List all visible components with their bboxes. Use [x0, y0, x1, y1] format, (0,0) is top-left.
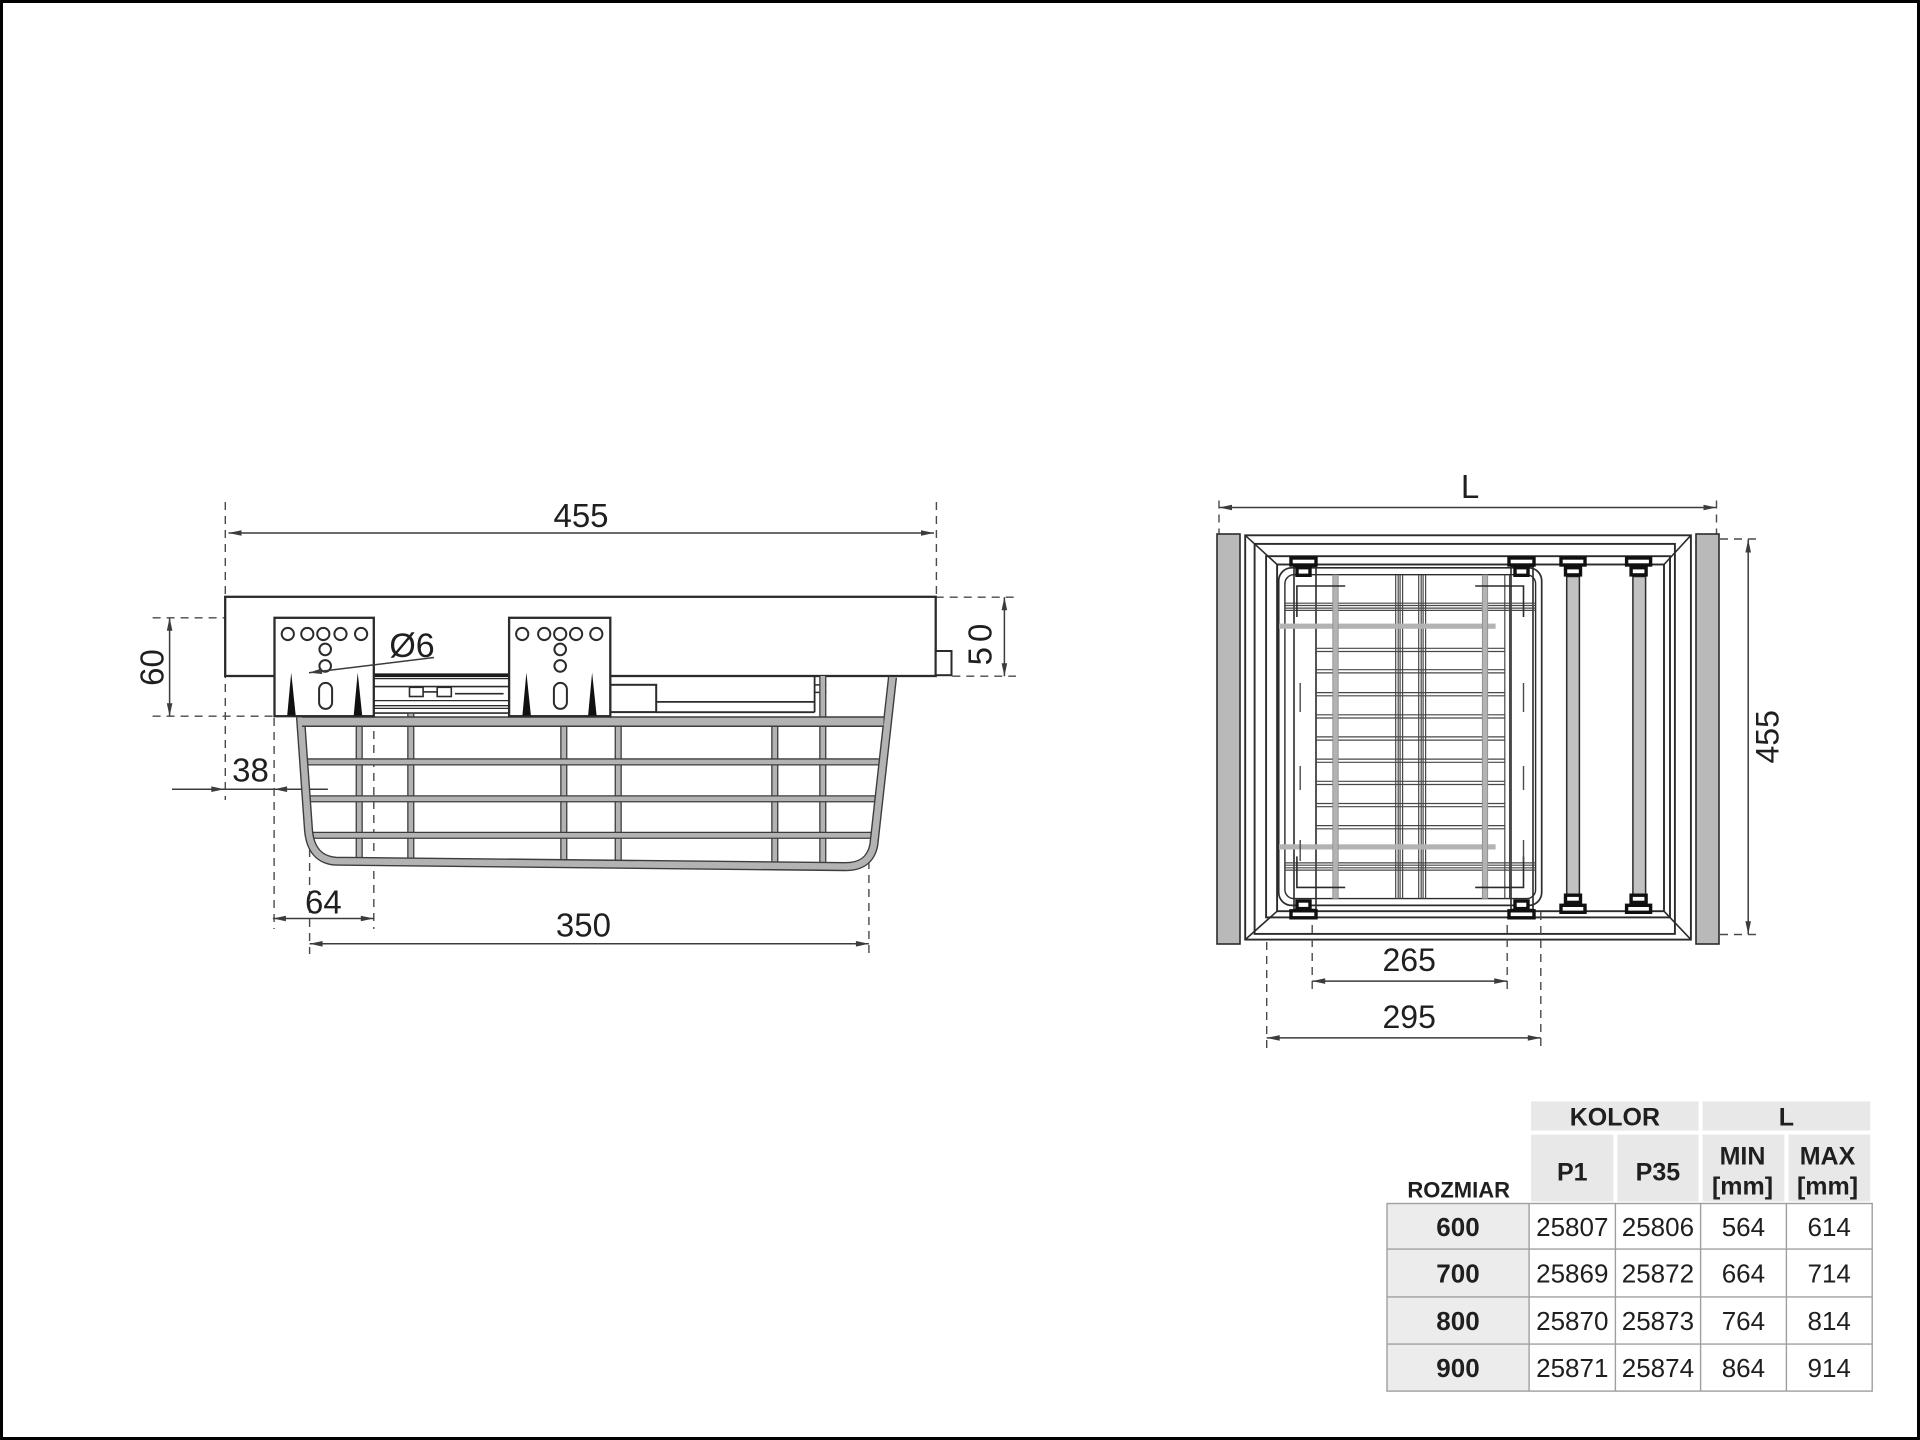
svg-text:MAX: MAX — [1800, 1142, 1856, 1170]
svg-text:KOLOR: KOLOR — [1570, 1103, 1660, 1131]
svg-text:50: 50 — [962, 619, 999, 666]
svg-text:700: 700 — [1436, 1259, 1479, 1289]
svg-text:[mm]: [mm] — [1797, 1172, 1858, 1200]
svg-text:265: 265 — [1383, 942, 1436, 978]
svg-text:60: 60 — [134, 649, 171, 686]
svg-text:P35: P35 — [1636, 1158, 1681, 1186]
svg-text:25872: 25872 — [1622, 1259, 1694, 1289]
svg-text:L: L — [1779, 1103, 1794, 1131]
svg-text:764: 764 — [1722, 1306, 1765, 1336]
svg-text:25870: 25870 — [1536, 1306, 1608, 1336]
svg-text:800: 800 — [1436, 1306, 1479, 1336]
svg-text:L: L — [1461, 468, 1479, 505]
svg-text:914: 914 — [1808, 1353, 1851, 1383]
svg-text:P1: P1 — [1557, 1158, 1588, 1186]
svg-text:25806: 25806 — [1622, 1212, 1694, 1242]
svg-text:900: 900 — [1436, 1353, 1479, 1383]
svg-text:564: 564 — [1722, 1212, 1765, 1242]
svg-text:25869: 25869 — [1536, 1259, 1608, 1289]
svg-text:455: 455 — [1750, 710, 1786, 763]
svg-text:664: 664 — [1722, 1259, 1765, 1289]
svg-text:814: 814 — [1808, 1306, 1851, 1336]
svg-text:25807: 25807 — [1536, 1212, 1608, 1242]
svg-text:Ø6: Ø6 — [389, 627, 434, 665]
svg-text:ROZMIAR: ROZMIAR — [1407, 1177, 1510, 1202]
svg-text:64: 64 — [305, 883, 342, 920]
svg-text:714: 714 — [1808, 1259, 1851, 1289]
svg-text:25871: 25871 — [1536, 1353, 1608, 1383]
svg-text:455: 455 — [553, 497, 608, 534]
svg-text:25874: 25874 — [1622, 1353, 1694, 1383]
svg-text:MIN: MIN — [1720, 1142, 1766, 1170]
svg-text:614: 614 — [1808, 1212, 1851, 1242]
svg-text:[mm]: [mm] — [1712, 1172, 1773, 1200]
svg-text:864: 864 — [1722, 1353, 1765, 1383]
svg-text:25873: 25873 — [1622, 1306, 1694, 1336]
svg-text:38: 38 — [232, 752, 269, 789]
svg-text:350: 350 — [556, 906, 611, 943]
svg-text:295: 295 — [1383, 999, 1436, 1035]
svg-text:600: 600 — [1436, 1212, 1479, 1242]
